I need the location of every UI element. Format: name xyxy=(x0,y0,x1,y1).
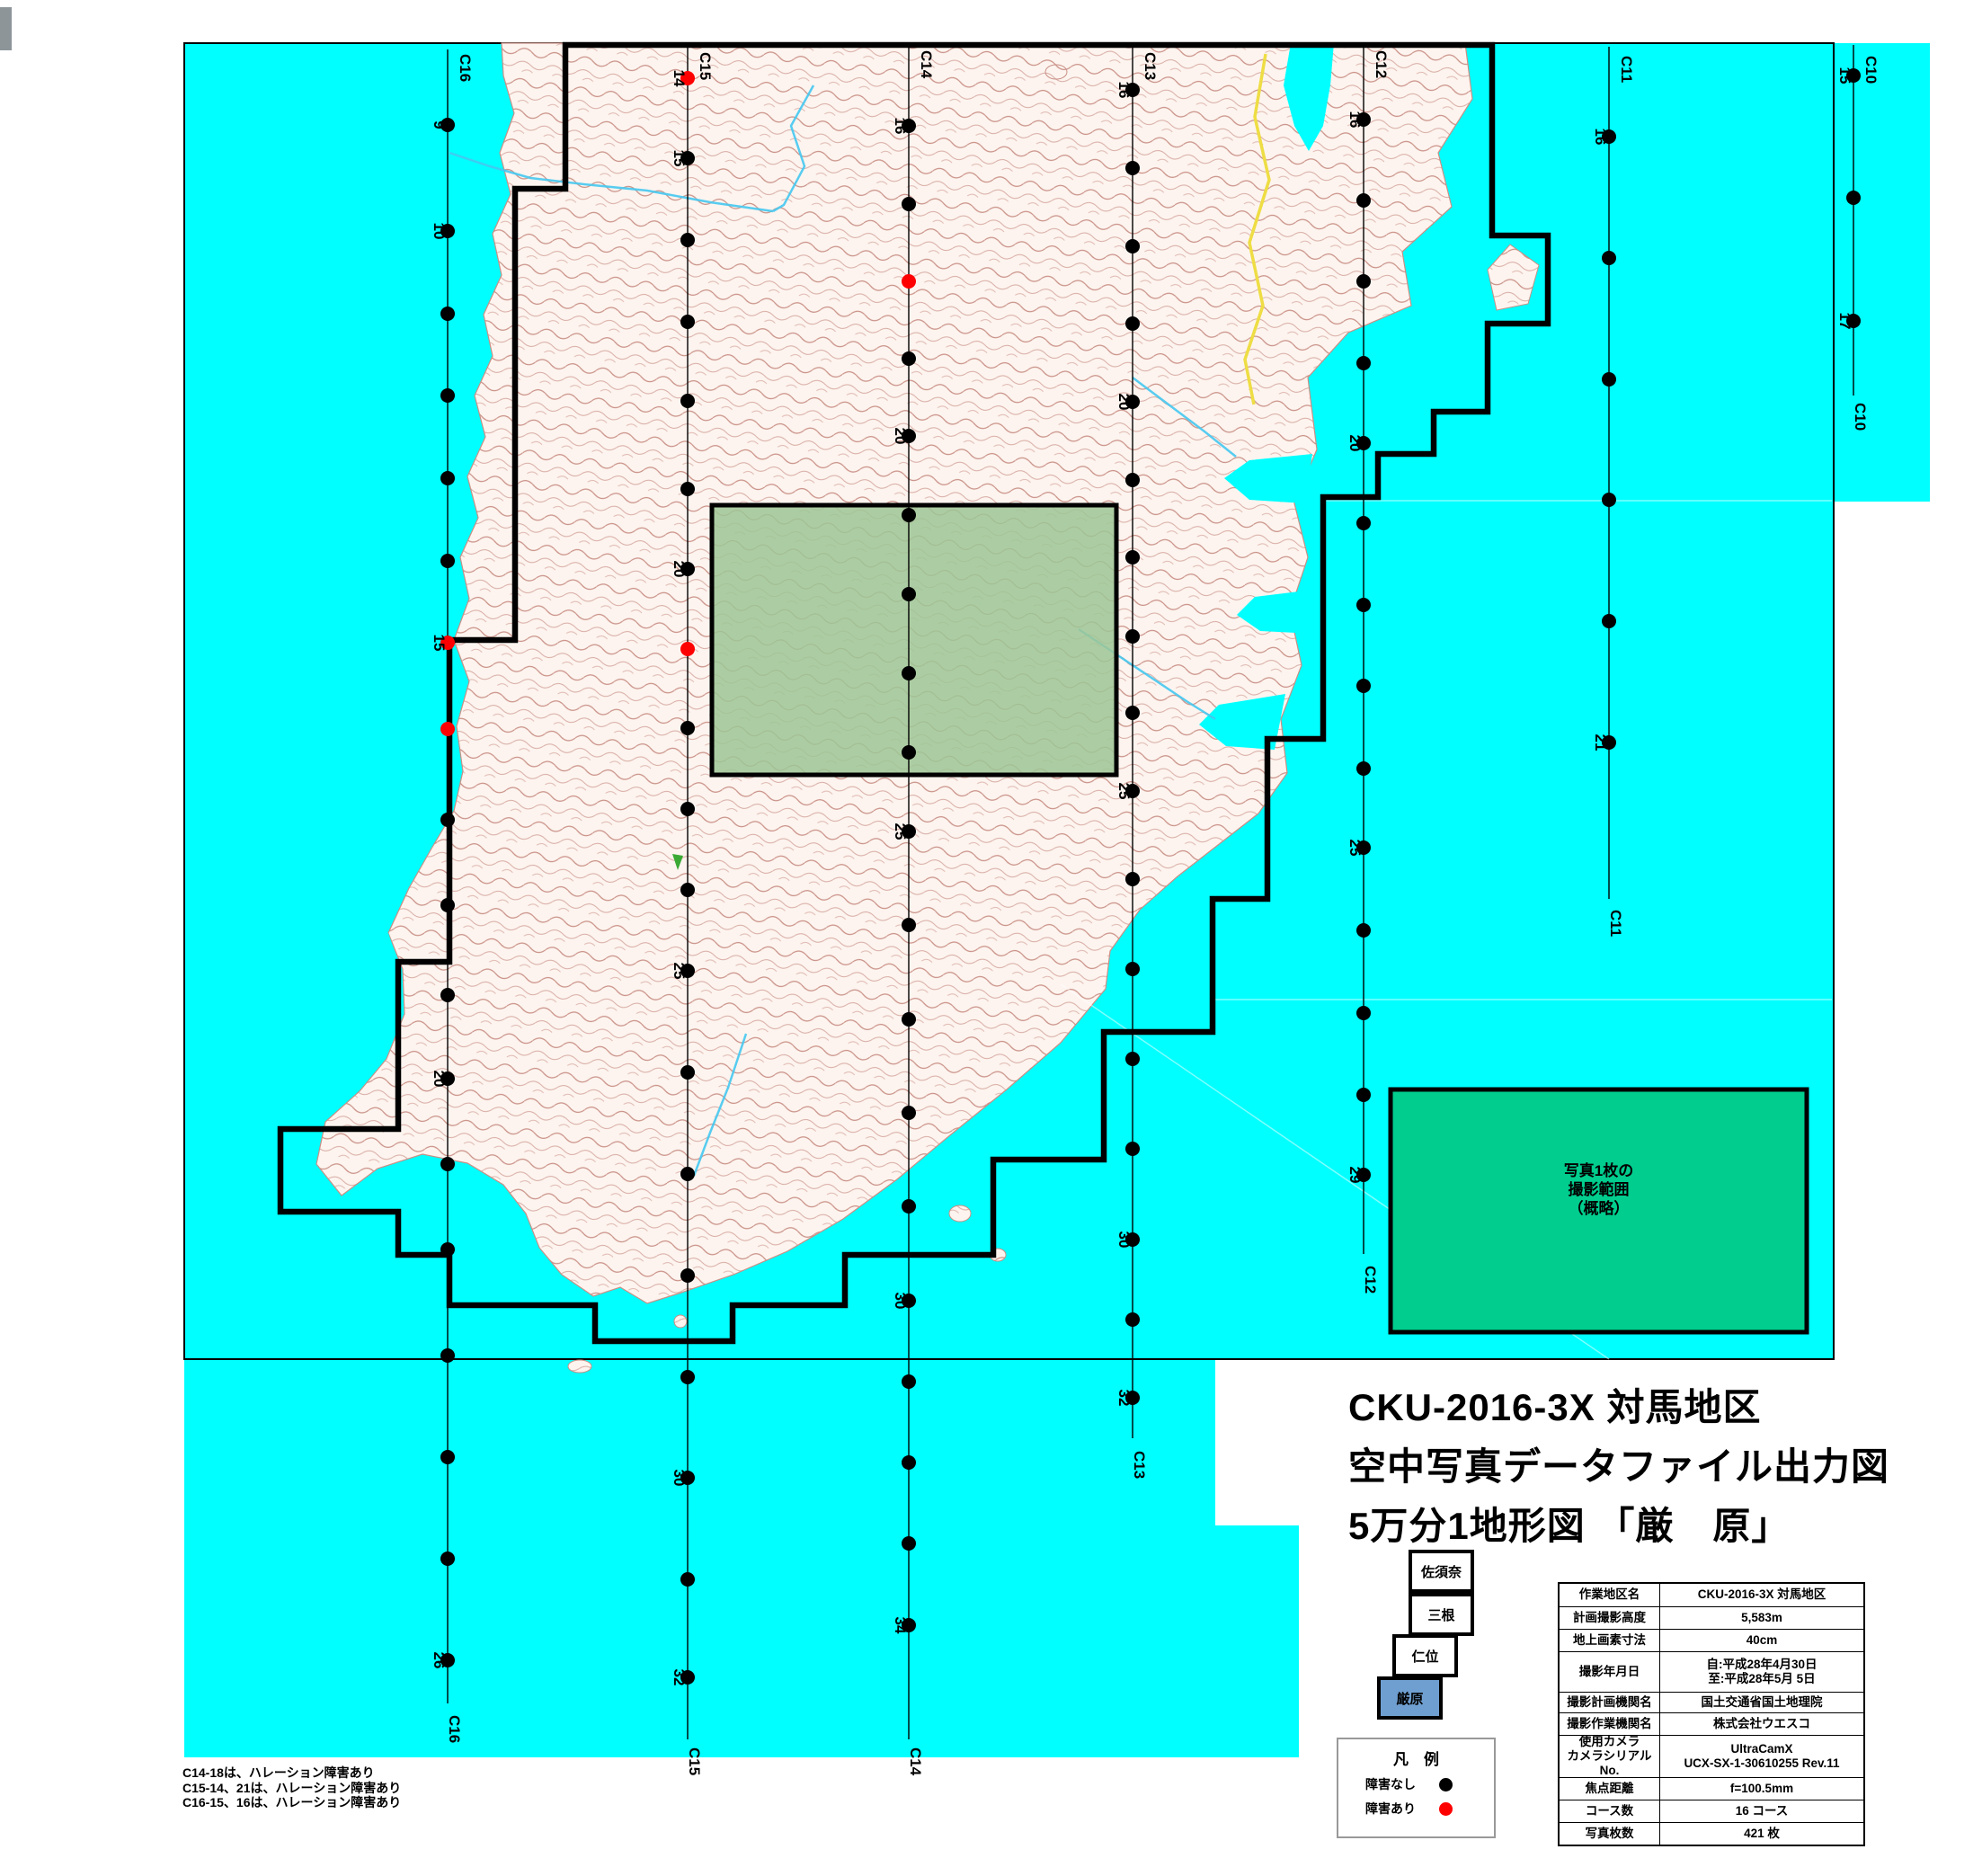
photo-center-dot xyxy=(680,233,695,247)
photo-center-dot xyxy=(1125,316,1140,331)
photo-center-dot xyxy=(1356,923,1371,938)
photo-center-dot xyxy=(440,898,455,912)
legend-dot-icon xyxy=(1439,1778,1453,1792)
table-row: 写真枚数421 枚 xyxy=(1560,1822,1863,1845)
table-label: 撮影計画機関名 xyxy=(1560,1693,1660,1712)
table-row: 焦点距離f=100.5mm xyxy=(1560,1777,1863,1800)
photo-center-dot xyxy=(440,1450,455,1464)
photo-center-dot xyxy=(1125,239,1140,253)
table-value: 5,583m xyxy=(1660,1607,1863,1629)
photo-number-label: 15 xyxy=(1836,67,1853,84)
photo-center-dot xyxy=(1125,161,1140,175)
photo-number-label: 20 xyxy=(1347,435,1364,452)
table-label: 計画撮影高度 xyxy=(1560,1607,1660,1629)
photo-center-dot xyxy=(440,813,455,827)
aerial-photo-index-map-page: C16C16910152026C15C15141520253032C14C141… xyxy=(0,0,1982,1876)
table-row: コース数16 コース xyxy=(1560,1800,1863,1822)
photo-number-label: 25 xyxy=(1347,840,1364,857)
photo-center-dot xyxy=(680,394,695,408)
islet xyxy=(568,1360,591,1373)
photo-footprint-label: 写真1枚の 撮影範囲 （概略） xyxy=(1391,1161,1807,1218)
photo-center-dot xyxy=(1125,473,1140,487)
note-line: C14-18は、ハレーション障害あり xyxy=(182,1765,401,1781)
photo-center-dot xyxy=(680,721,695,735)
index-sheet-2: 三根 xyxy=(1409,1593,1474,1636)
table-value: 株式会社ウエスコ xyxy=(1660,1713,1863,1735)
index-sheet-1: 佐須奈 xyxy=(1409,1550,1474,1593)
legend-dot-icon xyxy=(1439,1802,1453,1816)
table-value: CKU-2016-3X 対馬地区 xyxy=(1660,1584,1863,1606)
photo-footprint-overlay xyxy=(712,505,1116,775)
table-value: 自:平成28年4月30日 至:平成28年5月 5日 xyxy=(1660,1652,1863,1692)
photo-number-label: 14 xyxy=(671,70,688,87)
halation-notes: C14-18は、ハレーション障害ありC15-14、21は、ハレーション障害ありC… xyxy=(182,1765,401,1810)
photo-number-label: 32 xyxy=(671,1669,688,1686)
photo-center-dot xyxy=(440,554,455,568)
title-line-1: CKU-2016-3X 対馬地区 xyxy=(1348,1378,1889,1437)
table-value: 40cm xyxy=(1660,1630,1863,1651)
photo-center-dot xyxy=(902,1199,916,1214)
islet xyxy=(949,1205,971,1222)
photo-number-label: 17 xyxy=(1836,313,1853,330)
course-id-label: C13 xyxy=(1142,52,1159,80)
photo-center-dot xyxy=(1602,493,1616,507)
photo-center-dot xyxy=(1602,251,1616,265)
photo-center-dot xyxy=(440,1551,455,1566)
photo-center-dot xyxy=(902,587,916,601)
photo-center-dot xyxy=(1356,679,1371,693)
photo-number-label: 20 xyxy=(671,561,688,578)
note-line: C16-15、16は、ハレーション障害あり xyxy=(182,1795,401,1810)
course-id-label: C15 xyxy=(697,52,714,80)
index-sheet-3: 仁位 xyxy=(1392,1634,1458,1677)
photo-center-dot xyxy=(680,1572,695,1587)
photo-number-label: 15 xyxy=(671,150,688,167)
photo-center-dot xyxy=(1356,274,1371,289)
photo-number-label: 15 xyxy=(431,635,448,652)
legend-items: 障害なし障害あり xyxy=(1338,1775,1494,1818)
photo-number-label: 25 xyxy=(671,963,688,980)
photo-center-dot xyxy=(680,1065,695,1080)
table-value: 421 枚 xyxy=(1660,1823,1863,1845)
sea-extension-bottom xyxy=(184,1359,1299,1757)
photo-center-dot xyxy=(902,1536,916,1551)
table-row: 撮影計画機関名国土交通省国土地理院 xyxy=(1560,1692,1863,1712)
photo-number-label: 9 xyxy=(431,120,448,129)
table-label: 使用カメラ カメラシリアルNo. xyxy=(1560,1736,1660,1777)
table-value: 国土交通省国土地理院 xyxy=(1660,1693,1863,1712)
photo-center-dot xyxy=(680,883,695,897)
photo-number-label: 34 xyxy=(892,1617,909,1634)
photo-center-dot-obstructed xyxy=(440,722,455,736)
course-id-label: C12 xyxy=(1362,1266,1379,1294)
table-value: f=100.5mm xyxy=(1660,1778,1863,1800)
photo-center-dot xyxy=(440,1348,455,1363)
photo-center-dot xyxy=(1356,516,1371,530)
islet xyxy=(674,1315,687,1328)
table-label: 撮影作業機関名 xyxy=(1560,1713,1660,1735)
photo-center-dot xyxy=(1125,1142,1140,1156)
photo-number-label: 26 xyxy=(431,1652,448,1669)
photo-center-dot xyxy=(1125,1312,1140,1327)
photo-center-dot xyxy=(1125,962,1140,976)
photo-number-label: 20 xyxy=(431,1071,448,1088)
table-label: 写真枚数 xyxy=(1560,1823,1660,1845)
note-line: C15-14、21は、ハレーション障害あり xyxy=(182,1781,401,1796)
title-line-2: 空中写真データファイル出力図 xyxy=(1348,1437,1889,1497)
photo-center-dot xyxy=(680,1167,695,1181)
info-table: 作業地区名CKU-2016-3X 対馬地区計画撮影高度5,583m地上画素寸法4… xyxy=(1558,1582,1865,1846)
photo-center-dot xyxy=(1356,1006,1371,1020)
sea-extension-top-right xyxy=(1834,43,1930,502)
photo-center-dot xyxy=(1356,356,1371,370)
table-row: 地上画素寸法40cm xyxy=(1560,1629,1863,1651)
photo-center-dot xyxy=(1125,629,1140,644)
photo-center-dot-obstructed xyxy=(902,274,916,289)
course-id-label: C16 xyxy=(446,1715,463,1743)
table-row: 作業地区名CKU-2016-3X 対馬地区 xyxy=(1560,1584,1863,1606)
page-title: CKU-2016-3X 対馬地区 空中写真データファイル出力図 5万分1地形図 … xyxy=(1348,1378,1889,1556)
photo-number-label: 29 xyxy=(1347,1167,1364,1184)
legend-item: 障害なし xyxy=(1365,1775,1494,1793)
photo-center-dot xyxy=(440,471,455,485)
photo-number-label: 16 xyxy=(892,118,909,135)
photo-center-dot xyxy=(440,1157,455,1171)
photo-center-dot xyxy=(1602,372,1616,387)
photo-number-label: 16 xyxy=(1592,129,1609,146)
photo-number-label: 10 xyxy=(431,223,448,240)
photo-center-dot xyxy=(440,988,455,1002)
photo-center-dot xyxy=(902,1455,916,1470)
course-id-label: C14 xyxy=(918,50,935,79)
table-row: 撮影作業機関名株式会社ウエスコ xyxy=(1560,1712,1863,1735)
photo-center-dot xyxy=(440,1242,455,1257)
title-line-3: 5万分1地形図 「厳 原」 xyxy=(1348,1497,1889,1556)
course-id-label: C13 xyxy=(1131,1451,1148,1479)
photo-center-dot xyxy=(902,666,916,680)
course-id-label: C12 xyxy=(1373,50,1390,78)
islet xyxy=(1045,65,1067,79)
photo-center-dot xyxy=(680,315,695,329)
photo-center-dot-obstructed xyxy=(680,642,695,656)
photo-number-label: 30 xyxy=(671,1470,688,1487)
photo-center-dot xyxy=(680,482,695,496)
photo-number-label: 25 xyxy=(892,823,909,840)
photo-center-dot xyxy=(1125,706,1140,720)
photo-center-dot xyxy=(902,918,916,932)
photo-center-dot xyxy=(902,351,916,366)
table-label: 作業地区名 xyxy=(1560,1584,1660,1606)
photo-center-dot xyxy=(1356,193,1371,208)
photo-number-label: 25 xyxy=(1115,783,1133,800)
table-row: 計画撮影高度5,583m xyxy=(1560,1606,1863,1629)
photo-center-dot xyxy=(1125,550,1140,565)
legend-item: 障害あり xyxy=(1365,1800,1494,1818)
photo-center-dot xyxy=(1125,1052,1140,1066)
course-id-label: C11 xyxy=(1618,56,1635,83)
course-id-label: C16 xyxy=(457,54,474,82)
photo-center-dot xyxy=(1356,598,1371,612)
table-row: 使用カメラ カメラシリアルNo.UltraCamX UCX-SX-1-30610… xyxy=(1560,1735,1863,1777)
course-id-label: C14 xyxy=(907,1747,924,1776)
legend-item-label: 障害あり xyxy=(1365,1800,1416,1818)
photo-center-dot xyxy=(440,388,455,403)
photo-center-dot xyxy=(1846,191,1861,205)
photo-center-dot xyxy=(680,1268,695,1283)
photo-center-dot xyxy=(1125,872,1140,886)
photo-center-dot xyxy=(902,745,916,760)
photo-center-dot xyxy=(680,1370,695,1384)
photo-center-dot xyxy=(902,197,916,211)
corner-tab xyxy=(0,7,12,50)
photo-number-label: 30 xyxy=(892,1293,909,1310)
course-id-label: C10 xyxy=(1852,403,1869,431)
table-value: 16 コース xyxy=(1660,1800,1863,1822)
table-label: コース数 xyxy=(1560,1800,1660,1822)
legend-item-label: 障害なし xyxy=(1365,1775,1416,1793)
photo-center-dot xyxy=(1602,614,1616,628)
course-id-label: C15 xyxy=(686,1747,703,1775)
photo-center-dot xyxy=(902,1012,916,1027)
photo-number-label: 16 xyxy=(1115,82,1133,99)
photo-center-dot xyxy=(680,802,695,816)
table-label: 撮影年月日 xyxy=(1560,1652,1660,1692)
table-label: 焦点距離 xyxy=(1560,1778,1660,1800)
table-row: 撮影年月日自:平成28年4月30日 至:平成28年5月 5日 xyxy=(1560,1651,1863,1692)
photo-number-label: 30 xyxy=(1115,1231,1133,1249)
photo-center-dot xyxy=(902,1106,916,1120)
photo-number-label: 32 xyxy=(1115,1390,1133,1407)
photo-number-label: 21 xyxy=(1592,734,1609,751)
photo-center-dot xyxy=(1356,761,1371,776)
index-sheet-4: 厳原 xyxy=(1377,1676,1443,1720)
photo-center-dot xyxy=(1356,1088,1371,1102)
photo-center-dot xyxy=(902,1374,916,1389)
course-id-label: C10 xyxy=(1862,56,1880,84)
photo-number-label: 16 xyxy=(1347,111,1364,129)
photo-number-label: 20 xyxy=(1115,394,1133,411)
table-value: UltraCamX UCX-SX-1-30610255 Rev.11 xyxy=(1660,1736,1863,1777)
legend-title: 凡 例 xyxy=(1338,1747,1494,1769)
table-label: 地上画素寸法 xyxy=(1560,1630,1660,1651)
course-id-label: C11 xyxy=(1607,910,1624,937)
photo-center-dot xyxy=(902,508,916,522)
photo-number-label: 20 xyxy=(892,428,909,445)
legend-box: 凡 例 障害なし障害あり xyxy=(1337,1738,1496,1838)
photo-center-dot xyxy=(440,307,455,321)
